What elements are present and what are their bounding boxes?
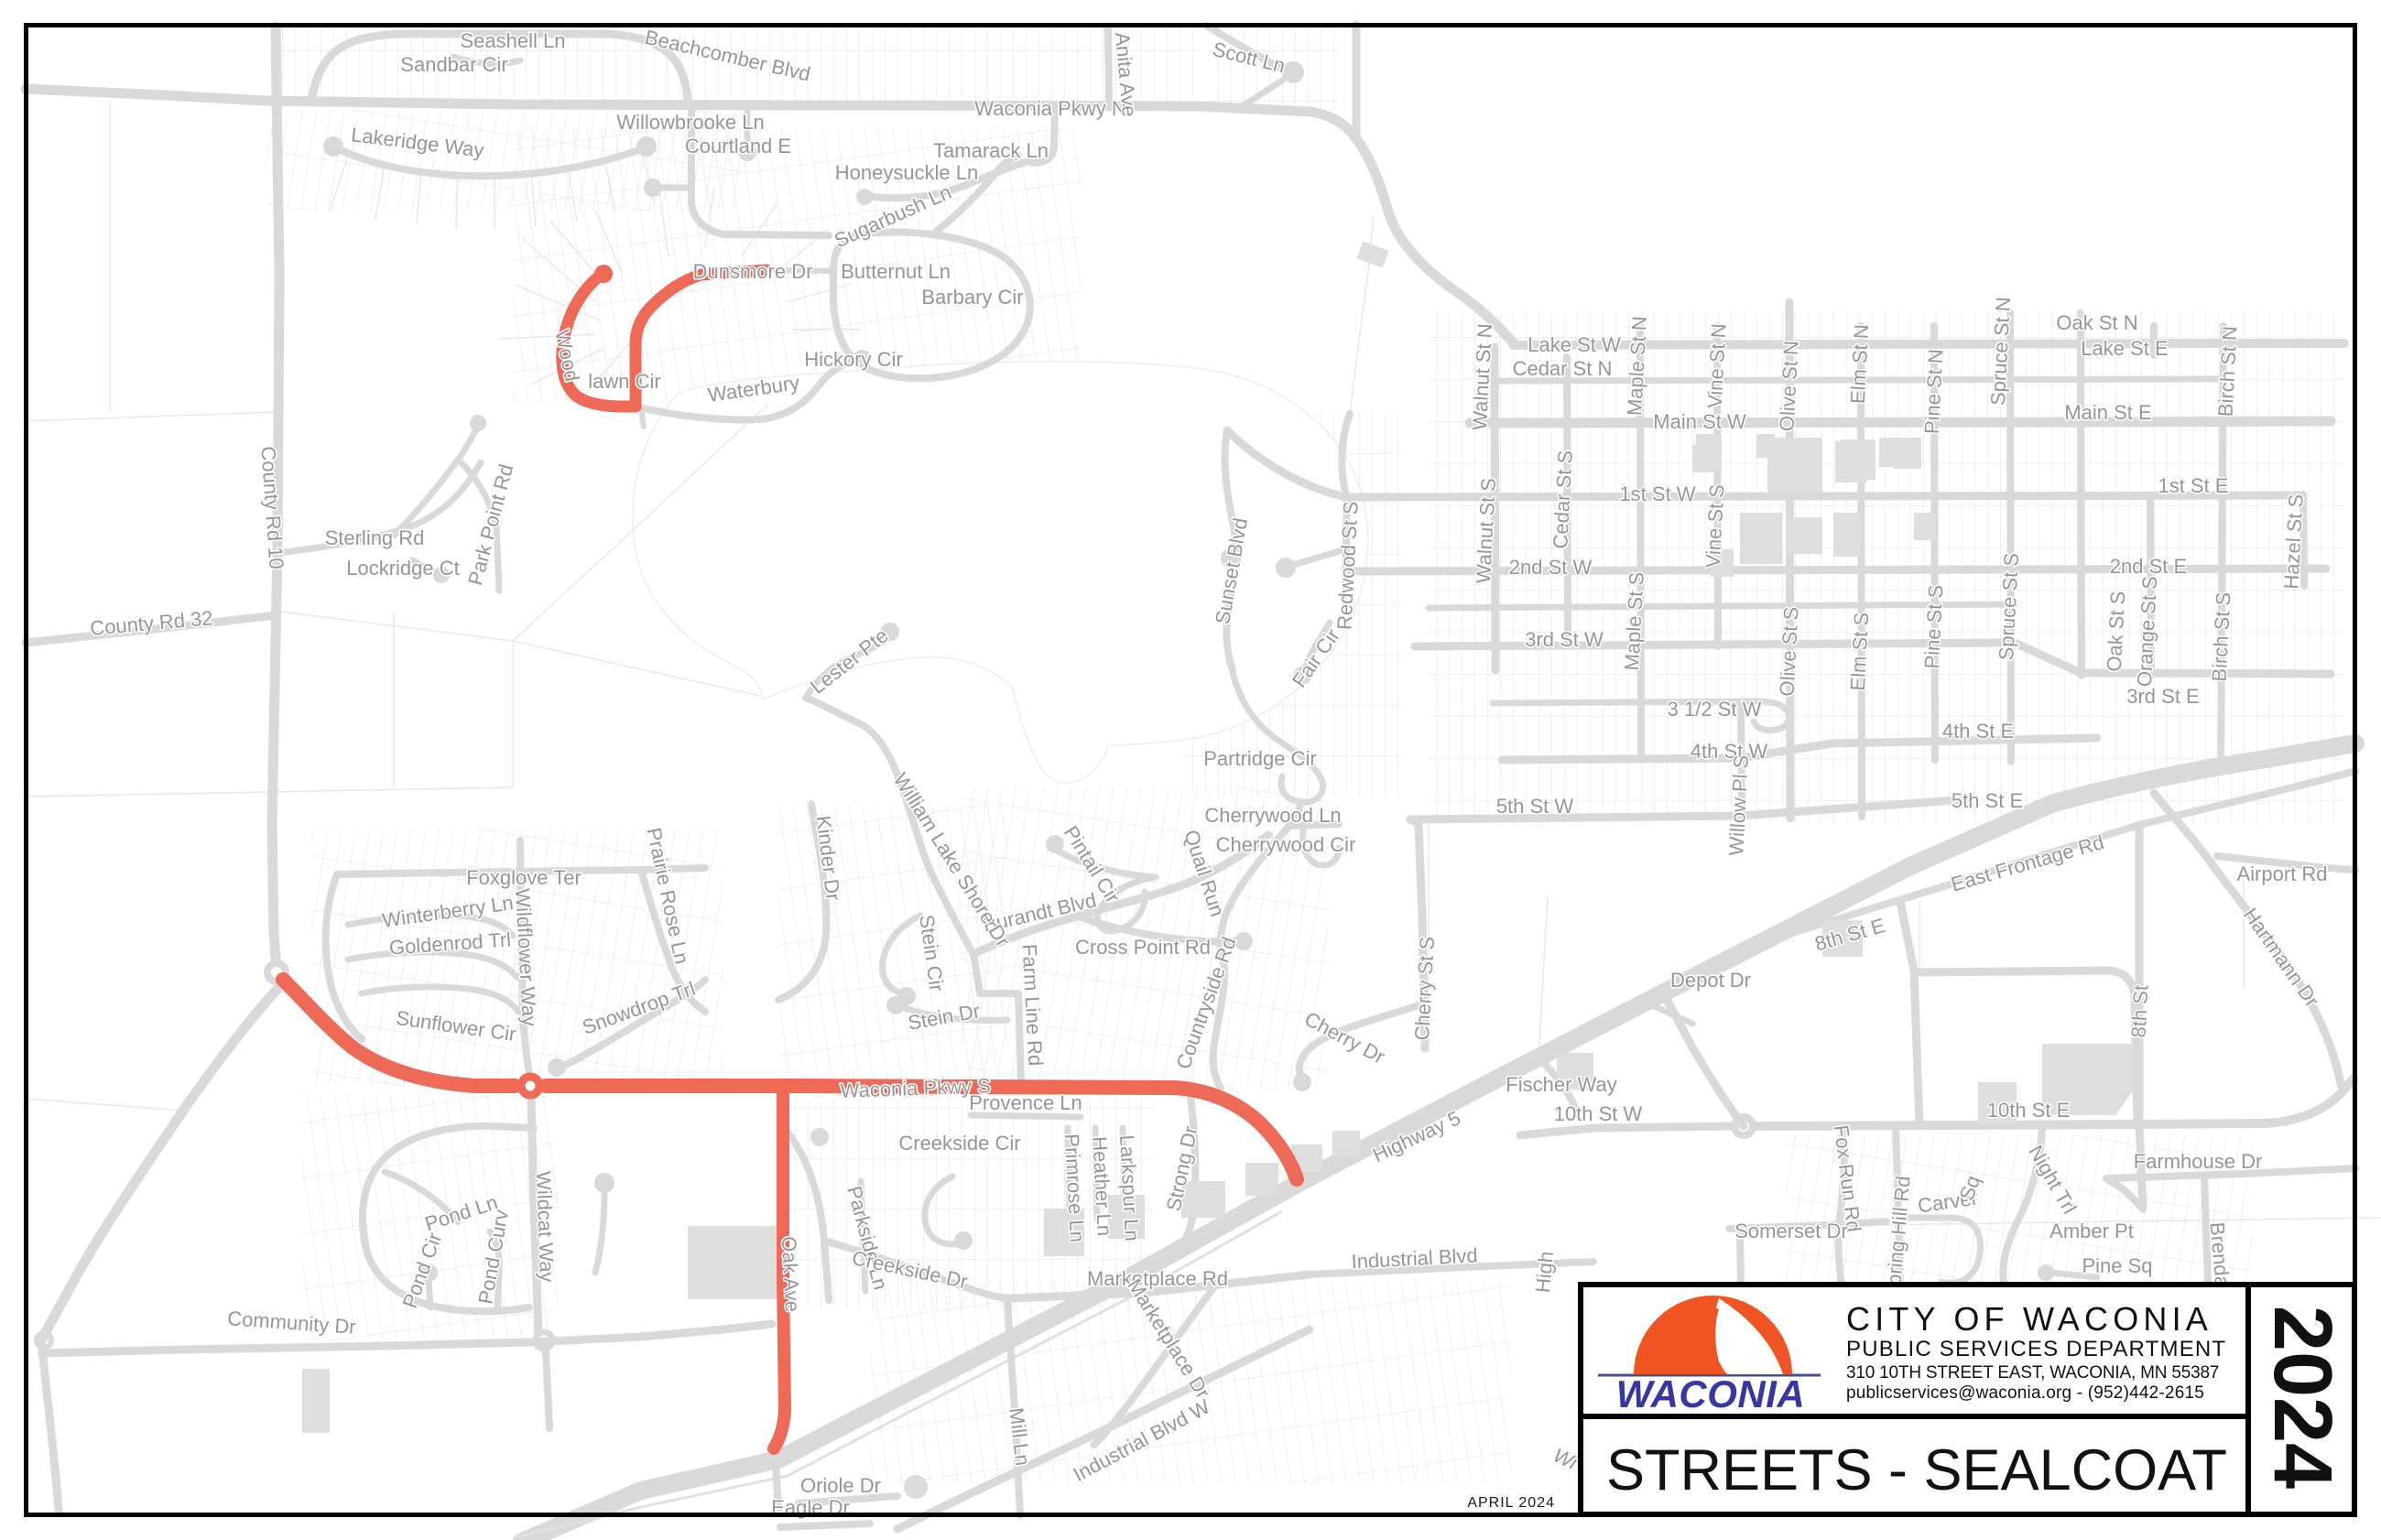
svg-text:Cross Point Rd: Cross Point Rd (1075, 936, 1211, 959)
svg-text:Butternut Ln: Butternut Ln (841, 260, 951, 283)
svg-text:High: High (1531, 1251, 1558, 1294)
svg-text:Honeysuckle Ln: Honeysuckle Ln (835, 161, 979, 184)
svg-text:Pine Sq: Pine Sq (2082, 1254, 2152, 1277)
svg-text:Pine St N: Pine St N (1920, 349, 1948, 435)
svg-text:Provence Ln: Provence Ln (969, 1091, 1082, 1114)
svg-text:2nd St E: 2nd St E (2110, 555, 2187, 578)
svg-text:Partridge Cir: Partridge Cir (1203, 747, 1316, 770)
svg-text:Elm St S: Elm St S (1846, 612, 1873, 691)
svg-text:Cherrywood Ln: Cherrywood Ln (1204, 804, 1341, 827)
svg-text:Tamarack Ln: Tamarack Ln (933, 139, 1049, 162)
svg-text:STREETS - SEALCOAT: STREETS - SEALCOAT (1606, 1438, 2227, 1502)
svg-text:Willowbrooke Ln: Willowbrooke Ln (616, 111, 764, 134)
svg-text:4th St E: 4th St E (1942, 720, 2014, 743)
svg-text:Cedar St N: Cedar St N (1513, 357, 1613, 380)
svg-text:Waconia Pkwy N: Waconia Pkwy N (974, 97, 1125, 120)
svg-text:3rd St E: 3rd St E (2126, 685, 2199, 708)
svg-text:3rd St W: 3rd St W (1525, 628, 1604, 651)
svg-text:Lake St W: Lake St W (1528, 333, 1621, 356)
svg-text:Vine St N: Vine St N (1703, 323, 1731, 409)
svg-text:CITY OF WACONIA: CITY OF WACONIA (1846, 1300, 2212, 1338)
svg-text:APRIL 2024: APRIL 2024 (1467, 1495, 1555, 1511)
svg-text:Cherrywood Cir: Cherrywood Cir (1216, 833, 1356, 856)
svg-text:Farmhouse Dr: Farmhouse Dr (2134, 1150, 2263, 1173)
svg-text:Wildcat Way: Wildcat Way (532, 1171, 559, 1283)
svg-text:Olive St N: Olive St N (1775, 341, 1802, 432)
svg-text:Somerset Dr: Somerset Dr (1734, 1220, 1847, 1242)
svg-text:Airport Rd: Airport Rd (2236, 862, 2327, 885)
svg-text:Birch St S: Birch St S (2207, 591, 2234, 682)
svg-text:Hickory Cir: Hickory Cir (804, 348, 903, 371)
svg-text:Depot Dr: Depot Dr (1670, 969, 1751, 992)
svg-text:2024: 2024 (2256, 1306, 2348, 1489)
svg-text:Fischer Way: Fischer Way (1506, 1073, 1616, 1096)
svg-text:Oak Ave: Oak Ave (777, 1236, 804, 1313)
svg-text:2nd St W: 2nd St W (1509, 556, 1593, 579)
svg-text:3 1/2 St W: 3 1/2 St W (1668, 698, 1762, 721)
svg-text:Oak St N: Oak St N (2056, 311, 2137, 334)
svg-text:8th St: 8th St (2127, 984, 2153, 1038)
svg-text:Lake St E: Lake St E (2081, 337, 2168, 360)
svg-text:Oak St S: Oak St S (2103, 591, 2130, 672)
svg-text:Lockridge Ct: Lockridge Ct (346, 557, 460, 580)
svg-text:Barbary Cir: Barbary Cir (921, 286, 1023, 309)
svg-text:Sandbar Cir: Sandbar Cir (400, 53, 507, 76)
svg-text:Amber Pt: Amber Pt (2049, 1220, 2134, 1242)
svg-text:Courtland E: Courtland E (685, 135, 791, 157)
svg-text:Sterling Rd: Sterling Rd (325, 526, 425, 549)
svg-text:5th St W: 5th St W (1496, 795, 1574, 818)
svg-text:PUBLIC SERVICES DEPARTMENT: PUBLIC SERVICES DEPARTMENT (1846, 1337, 2226, 1361)
svg-text:1st St E: 1st St E (2158, 474, 2228, 497)
svg-text:lawn Cir: lawn Cir (588, 370, 660, 393)
svg-text:Birch St N: Birch St N (2213, 326, 2241, 418)
svg-text:Dunsmore Dr: Dunsmore Dr (693, 260, 813, 283)
svg-text:10th St W: 10th St W (1554, 1102, 1643, 1125)
svg-text:10th St E: 10th St E (1987, 1099, 2071, 1122)
svg-text:WACONIA: WACONIA (1616, 1372, 1806, 1415)
svg-text:Main St E: Main St E (2064, 401, 2151, 424)
svg-text:Marketplace Rd: Marketplace Rd (1087, 1267, 1228, 1290)
svg-text:1st St W: 1st St W (1619, 483, 1695, 505)
svg-text:Main St W: Main St W (1653, 410, 1746, 433)
svg-text:Pine St S: Pine St S (1920, 584, 1948, 669)
svg-text:Foxglove Ter: Foxglove Ter (466, 866, 582, 889)
svg-text:Creekside Cir: Creekside Cir (898, 1132, 1020, 1155)
svg-text:310 10TH STREET EAST, WACONIA,: 310 10TH STREET EAST, WACONIA, MN 55387 (1846, 1363, 2219, 1383)
svg-text:5th St E: 5th St E (1952, 789, 2023, 812)
svg-text:Oriole Dr: Oriole Dr (800, 1474, 881, 1497)
svg-text:Elm St N: Elm St N (1846, 324, 1874, 405)
svg-text:Olive St S: Olive St S (1775, 606, 1802, 697)
svg-text:Vine St S: Vine St S (1701, 483, 1729, 569)
svg-text:publicservices@waconia.org - (: publicservices@waconia.org - (952)442-26… (1846, 1383, 2204, 1403)
svg-text:Seashell Ln: Seashell Ln (461, 29, 566, 52)
